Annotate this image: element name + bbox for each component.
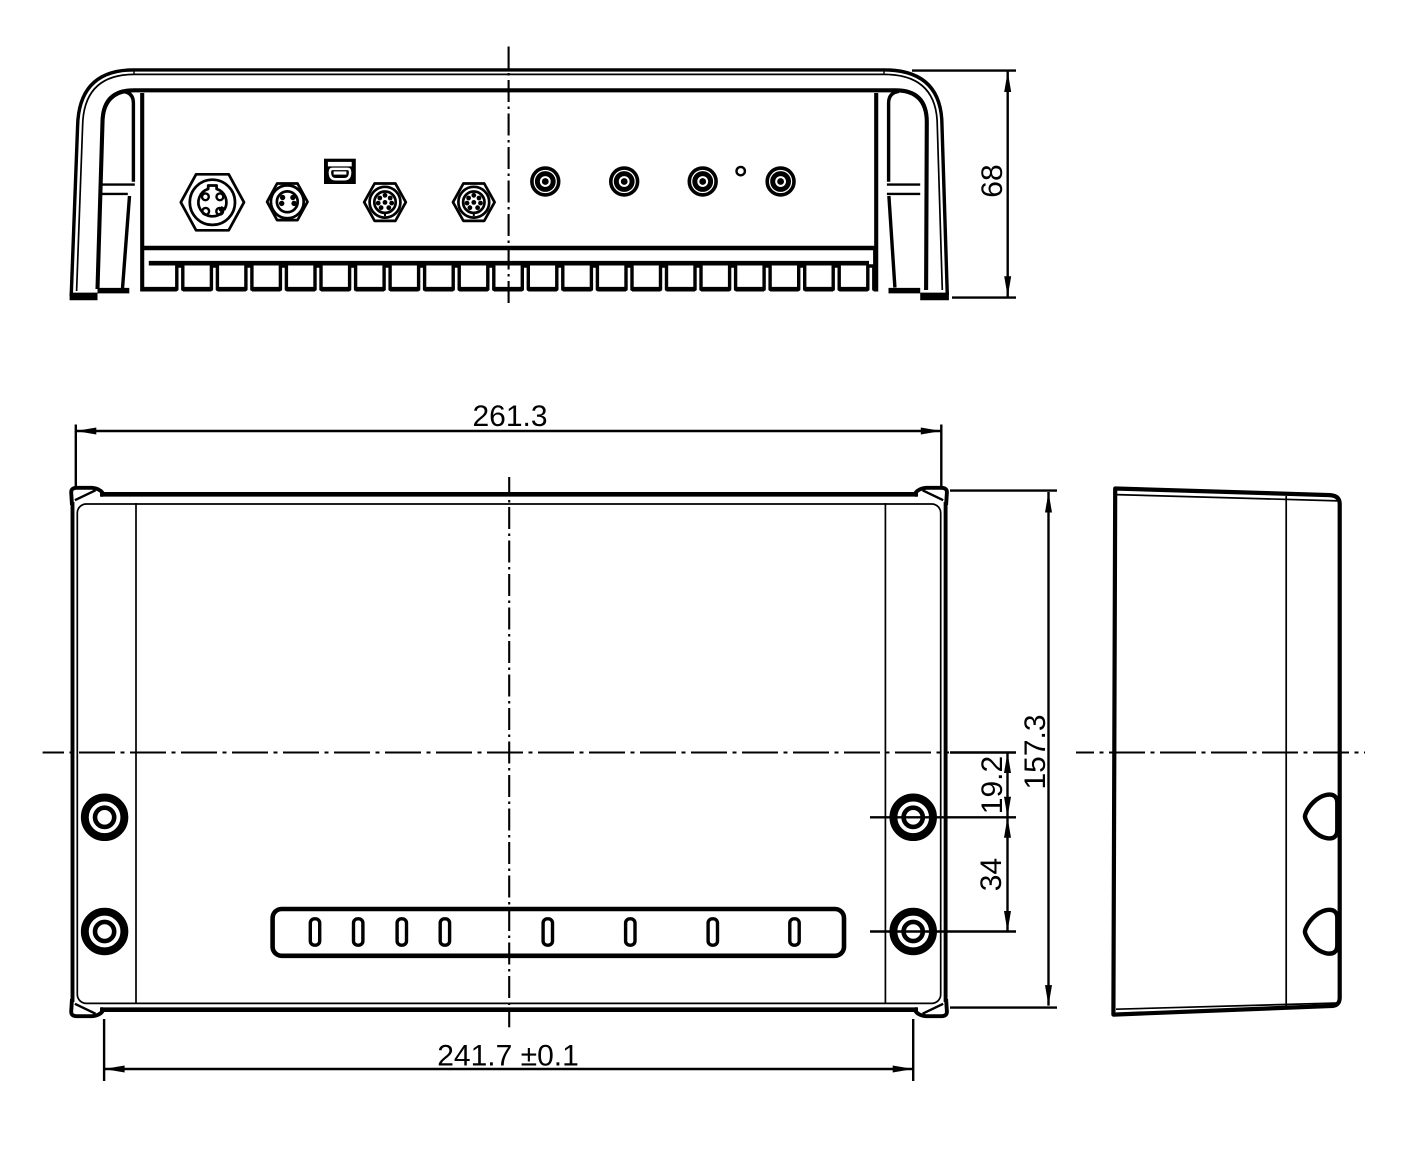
- svg-text:261.3: 261.3: [472, 400, 547, 433]
- svg-text:241.7 ±0.1: 241.7 ±0.1: [437, 1040, 579, 1073]
- svg-text:157.3: 157.3: [1019, 714, 1052, 789]
- svg-text:19.2: 19.2: [976, 756, 1009, 814]
- svg-text:34: 34: [975, 858, 1008, 891]
- svg-text:68: 68: [976, 164, 1009, 197]
